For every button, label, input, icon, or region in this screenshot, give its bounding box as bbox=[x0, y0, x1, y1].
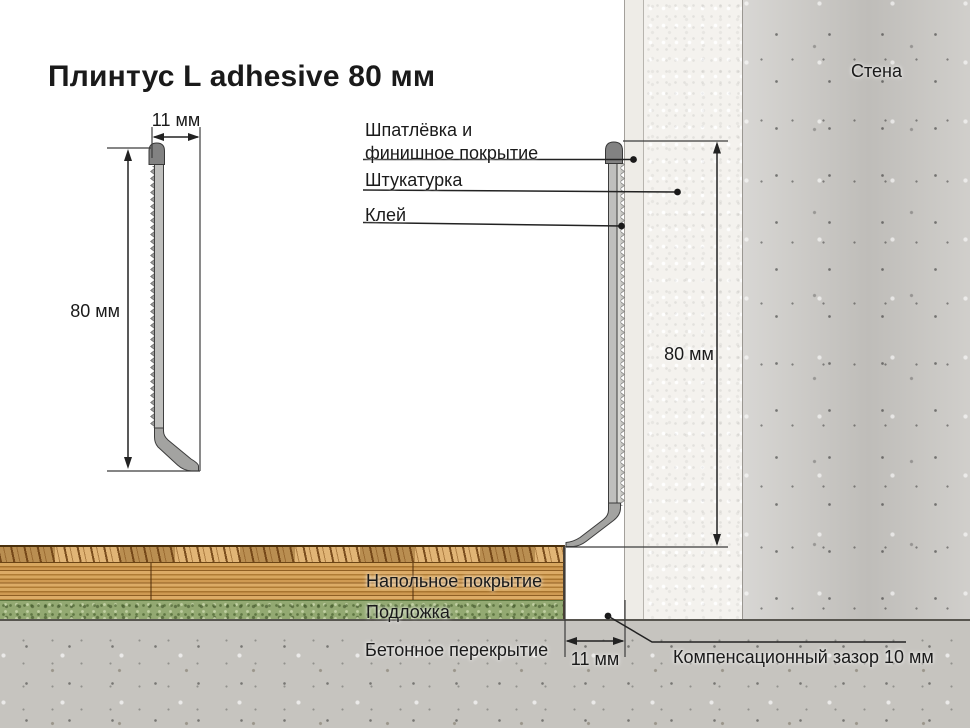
label-glue: Клей bbox=[365, 204, 406, 227]
diagram-page: { "title": "Плинтус L adhesive 80 мм", "… bbox=[0, 0, 970, 728]
dim-80-left-label: 80 мм bbox=[40, 300, 120, 323]
profile-left-body bbox=[155, 150, 164, 431]
label-expansion-gap: Компенсационный зазор 10 мм bbox=[673, 646, 934, 669]
profile-left-glue-teeth bbox=[150, 166, 155, 428]
bottom-width-dimension bbox=[566, 637, 625, 645]
layer-leaders bbox=[363, 156, 681, 229]
label-concrete-slab: Бетонное перекрытие bbox=[365, 639, 548, 662]
profile-left-detail bbox=[149, 143, 199, 471]
label-putty-finish: Шпатлёвка и финишное покрытие bbox=[365, 119, 561, 164]
label-plaster: Штукатурка bbox=[365, 169, 462, 192]
profile-wall-foot bbox=[566, 503, 621, 547]
profile-left-foot bbox=[155, 428, 199, 471]
glue-teeth bbox=[621, 160, 626, 506]
gap-leader bbox=[605, 613, 906, 642]
label-floor-covering: Напольное покрытие bbox=[366, 570, 542, 593]
label-wall: Стена bbox=[851, 60, 902, 83]
dim-11-top-label: 11 мм bbox=[146, 109, 206, 132]
label-underlay: Подложка bbox=[366, 601, 450, 624]
profile-left-cap bbox=[149, 143, 165, 165]
profile-on-wall bbox=[566, 142, 625, 547]
profile-wall-cap bbox=[606, 142, 623, 164]
dim-80-right-label: 80 мм bbox=[658, 343, 720, 366]
dim-11-bottom-label: 11 мм bbox=[564, 648, 626, 671]
page-title: Плинтус L adhesive 80 мм bbox=[48, 60, 435, 94]
profile-wall-body bbox=[609, 152, 618, 506]
